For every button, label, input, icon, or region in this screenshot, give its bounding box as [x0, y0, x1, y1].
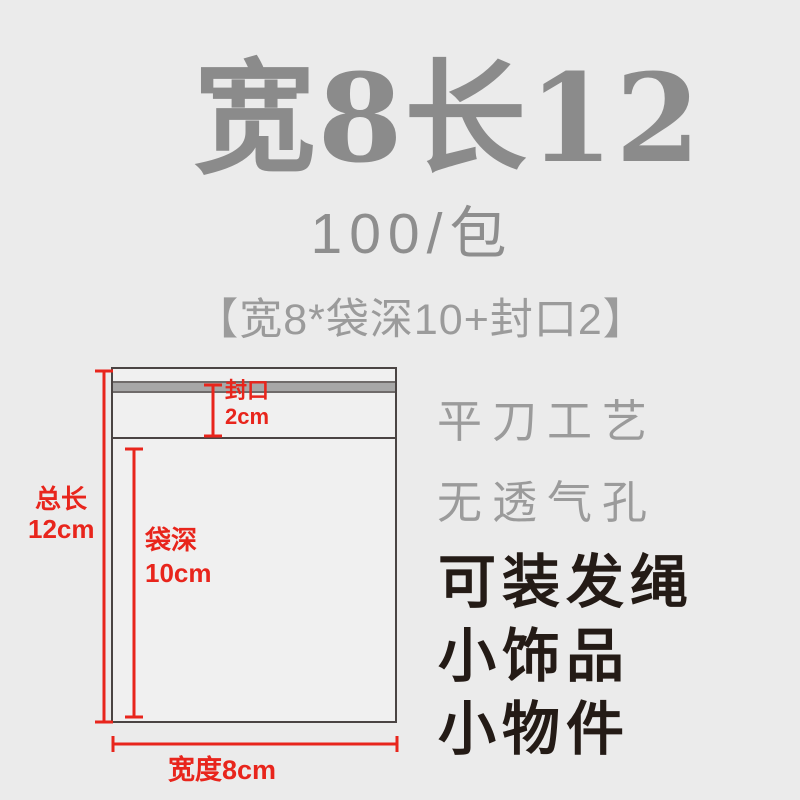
product-spec-image: 宽8长12 100/包 【宽8*袋深10+封口2】 总长 12cm 袋深 10c…	[0, 0, 800, 800]
seal-text: 封口	[220, 378, 274, 404]
size-spec-line: 【宽8*袋深10+封口2】	[42, 297, 800, 344]
feature-use-small-accessories: 小饰品	[438, 628, 630, 686]
flap-fold-line	[113, 437, 395, 439]
feature-use-hair-ties: 可装发绳	[438, 554, 694, 612]
total-length-value: 12cm	[28, 514, 94, 544]
bag-depth-label: 袋深 10cm	[145, 524, 212, 590]
pack-quantity: 100/包	[24, 206, 800, 263]
total-length-label: 总长 12cm	[28, 484, 94, 544]
bag-depth-text: 袋深	[145, 524, 212, 557]
seal-value: 2cm	[220, 404, 274, 430]
total-length-text: 总长	[28, 484, 94, 514]
feature-craft-no-air-holes: 无透气孔	[437, 480, 657, 525]
feature-craft-flat-cut: 平刀工艺	[437, 399, 657, 444]
width-label: 宽度8cm	[112, 757, 332, 784]
seal-label: 封口 2cm	[220, 378, 274, 430]
page-title: 宽8长12	[96, 50, 800, 187]
feature-use-small-items: 小物件	[438, 701, 630, 759]
bag-depth-value: 10cm	[145, 557, 212, 590]
